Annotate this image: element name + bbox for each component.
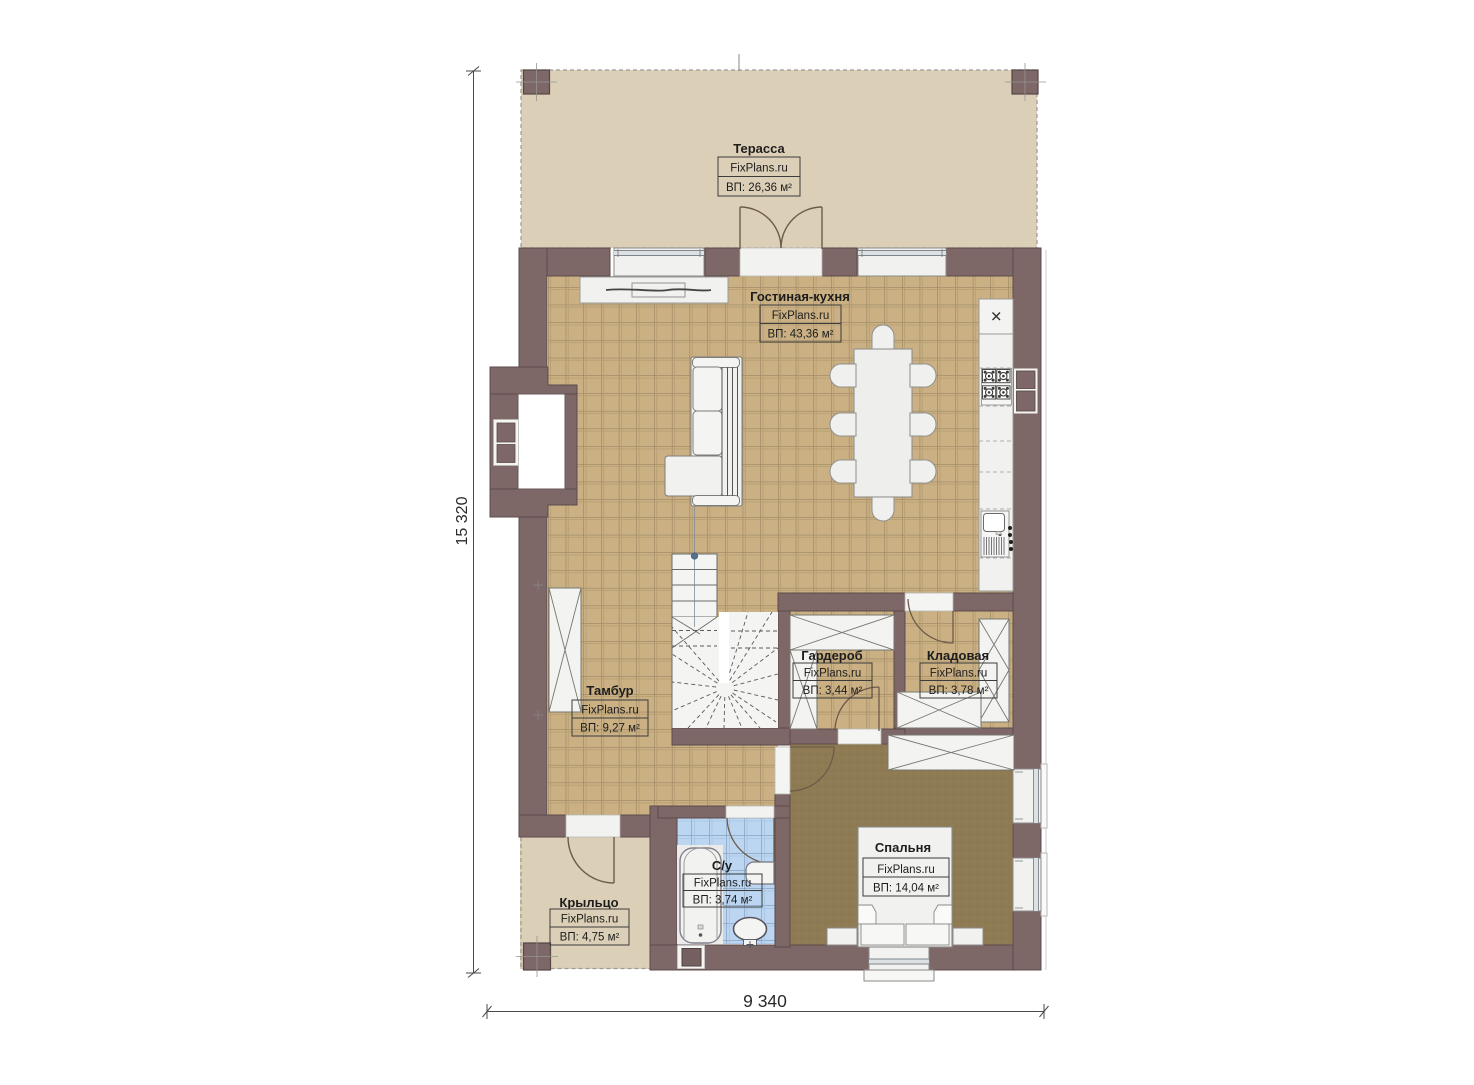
svg-text:FixPlans.ru: FixPlans.ru bbox=[930, 668, 988, 680]
svg-text:Гостиная-кухня: Гостиная-кухня bbox=[750, 289, 850, 304]
svg-text:ВП: 14,04 м²: ВП: 14,04 м² bbox=[873, 883, 939, 895]
svg-text:FixPlans.ru: FixPlans.ru bbox=[730, 163, 788, 175]
svg-text:Гардероб: Гардероб bbox=[801, 648, 862, 663]
svg-text:15 320: 15 320 bbox=[454, 496, 471, 545]
svg-text:Терасса: Терасса bbox=[733, 141, 785, 156]
svg-text:ВП: 4,75 м²: ВП: 4,75 м² bbox=[560, 932, 620, 944]
svg-text:FixPlans.ru: FixPlans.ru bbox=[581, 705, 639, 717]
svg-text:ВП: 9,27 м²: ВП: 9,27 м² bbox=[580, 723, 640, 735]
svg-text:ВП: 26,36 м²: ВП: 26,36 м² bbox=[726, 182, 792, 194]
svg-text:FixPlans.ru: FixPlans.ru bbox=[694, 878, 752, 890]
svg-text:ВП: 3,78 м²: ВП: 3,78 м² bbox=[929, 685, 989, 697]
svg-text:Спальня: Спальня bbox=[875, 840, 931, 855]
svg-text:FixPlans.ru: FixPlans.ru bbox=[561, 914, 619, 926]
svg-text:ВП: 3,44 м²: ВП: 3,44 м² bbox=[803, 685, 863, 697]
svg-text:FixPlans.ru: FixPlans.ru bbox=[804, 668, 862, 680]
svg-text:Кладовая: Кладовая bbox=[927, 648, 989, 663]
svg-text:FixPlans.ru: FixPlans.ru bbox=[877, 864, 935, 876]
svg-text:FixPlans.ru: FixPlans.ru bbox=[772, 310, 830, 322]
svg-text:Тамбур: Тамбур bbox=[586, 683, 633, 698]
svg-text:ВП: 43,36 м²: ВП: 43,36 м² bbox=[767, 329, 833, 341]
svg-text:С/у: С/у bbox=[712, 858, 733, 873]
svg-text:ВП: 3,74 м²: ВП: 3,74 м² bbox=[693, 895, 753, 907]
svg-text:9 340: 9 340 bbox=[743, 991, 787, 1011]
svg-text:Крыльцо: Крыльцо bbox=[559, 895, 618, 910]
